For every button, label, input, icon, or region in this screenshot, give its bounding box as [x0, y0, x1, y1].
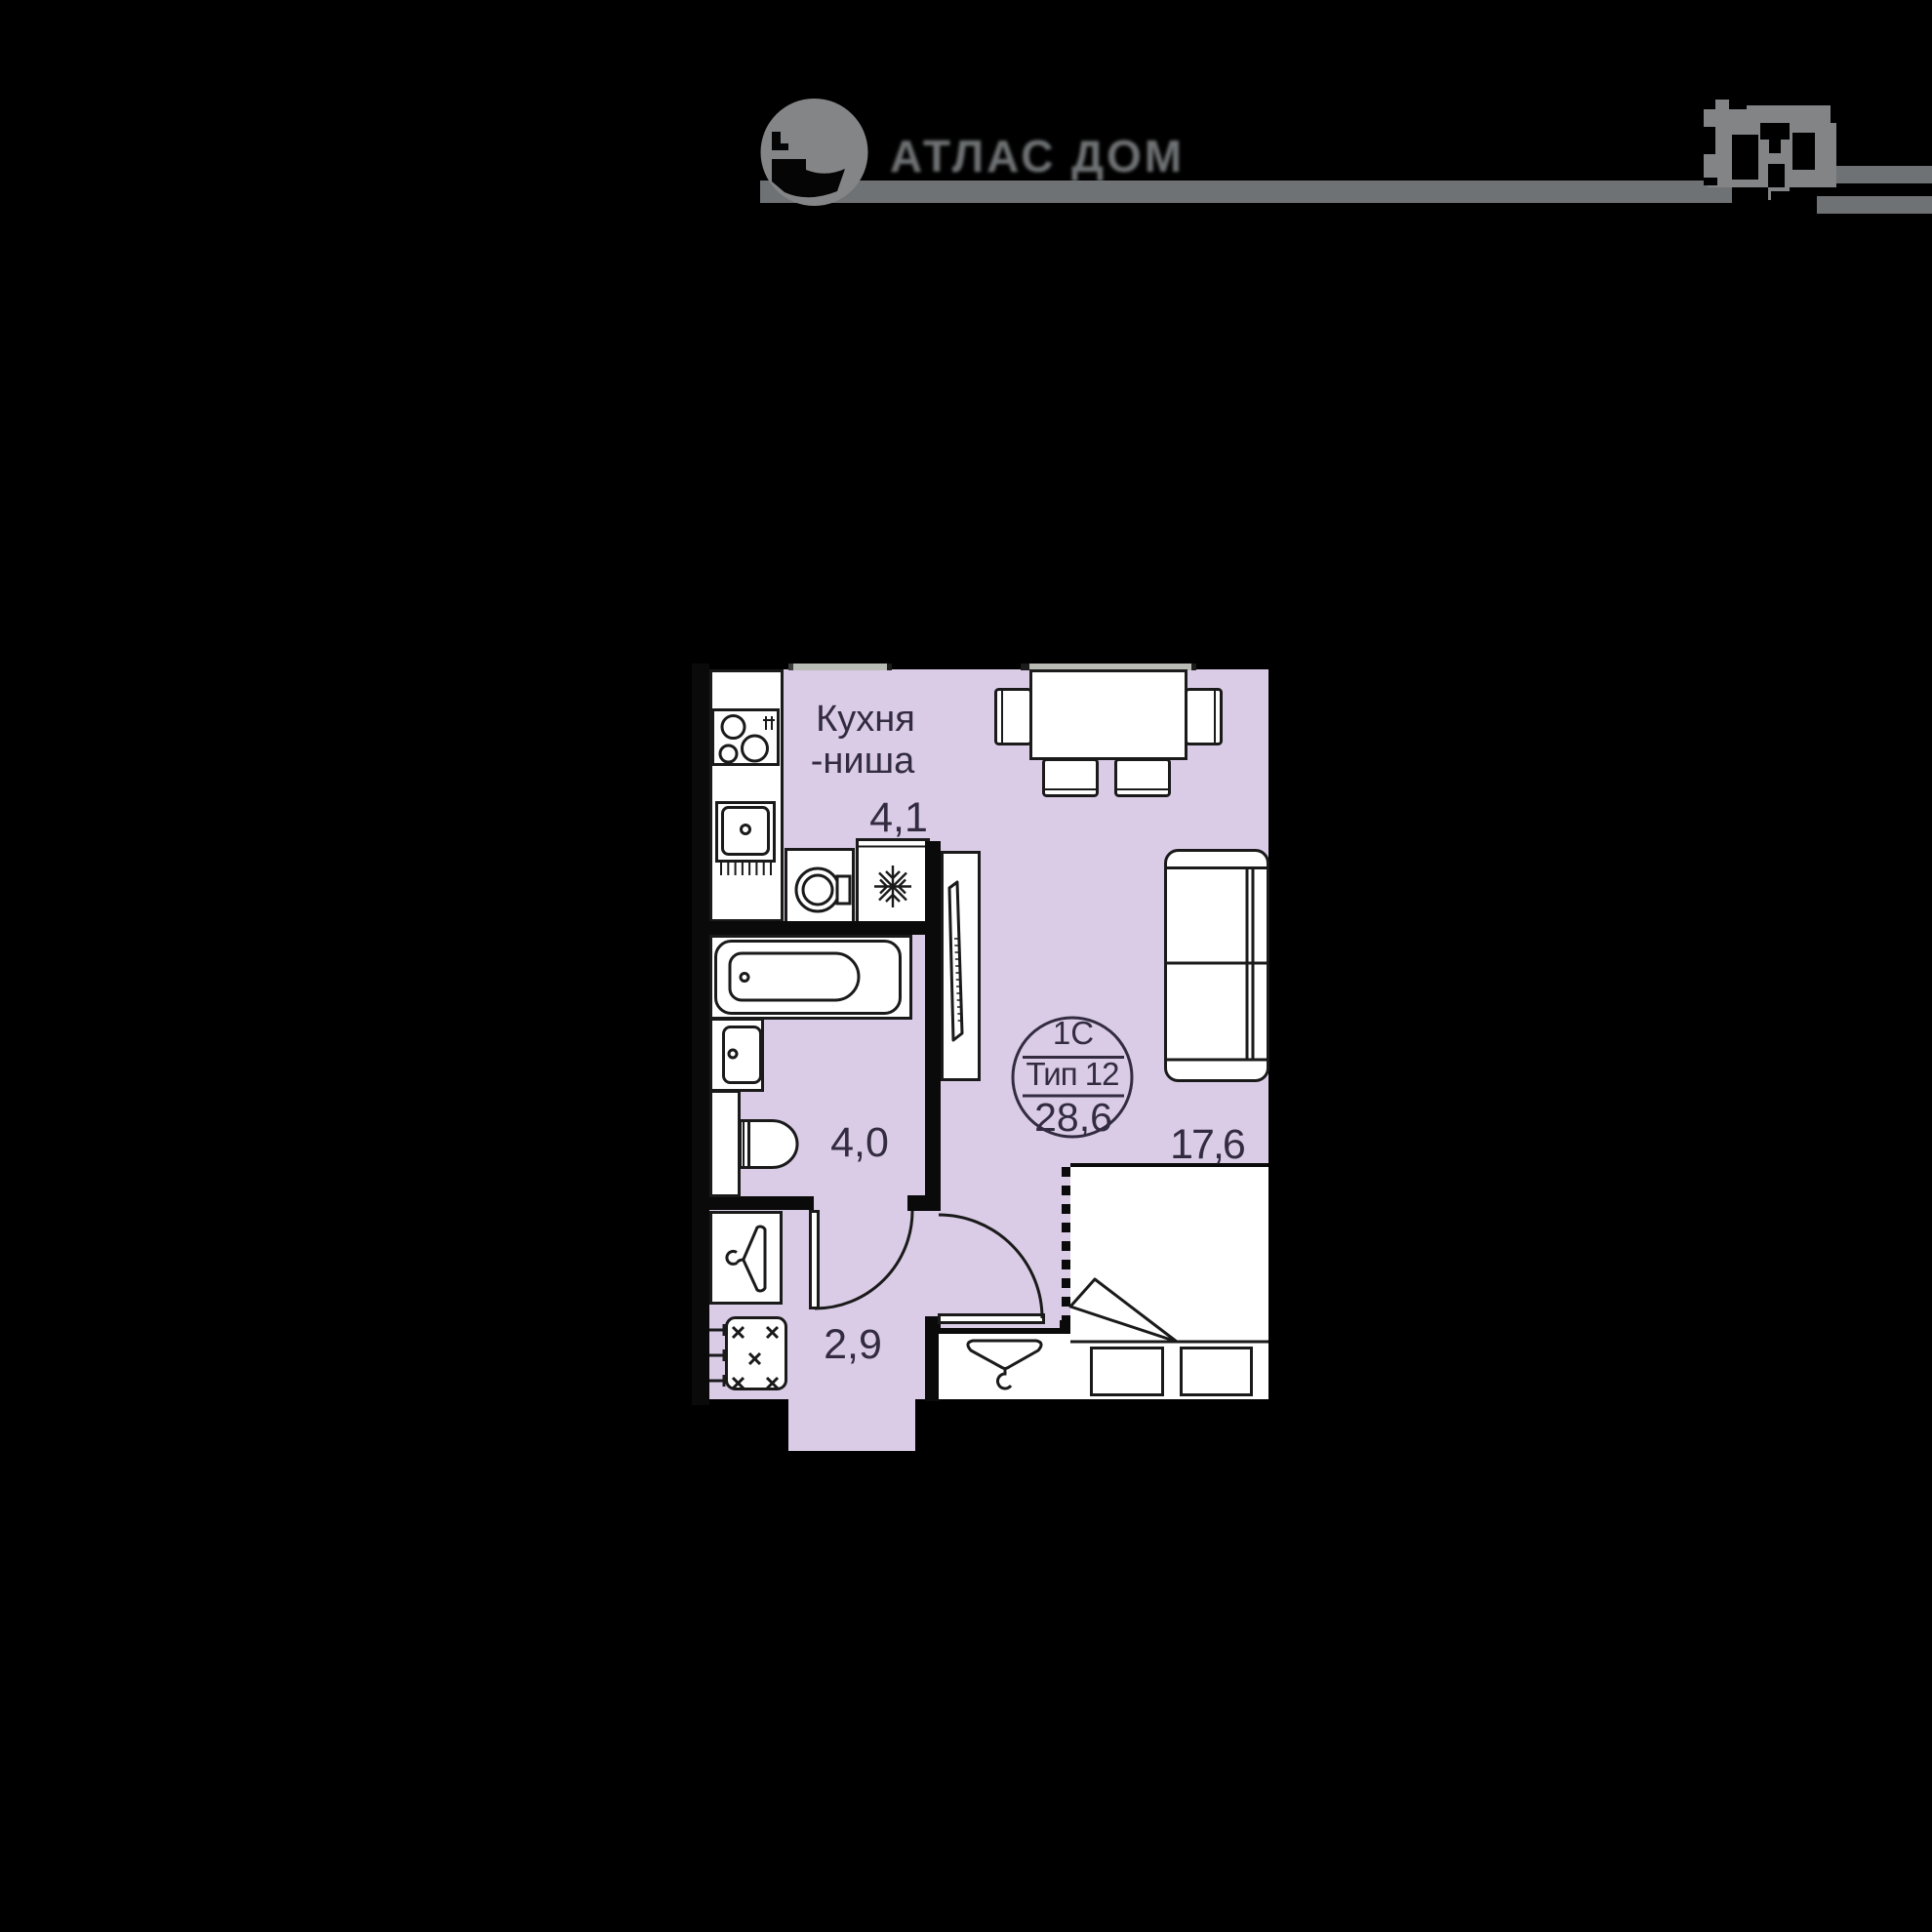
svg-text:1С: 1С	[1053, 1015, 1094, 1051]
svg-text:2,9: 2,9	[824, 1321, 882, 1368]
svg-text:4,1: 4,1	[869, 794, 928, 841]
svg-text:Тип 12: Тип 12	[1026, 1056, 1119, 1092]
svg-text:АТЛАС ДОМ: АТЛАС ДОМ	[890, 131, 1185, 181]
svg-text:17,6: 17,6	[1170, 1121, 1245, 1168]
svg-text:4,0: 4,0	[830, 1119, 889, 1166]
svg-text:28,6: 28,6	[1034, 1095, 1112, 1140]
svg-text:Кухня: Кухня	[816, 699, 915, 740]
svg-text:-ниша: -ниша	[811, 741, 915, 782]
